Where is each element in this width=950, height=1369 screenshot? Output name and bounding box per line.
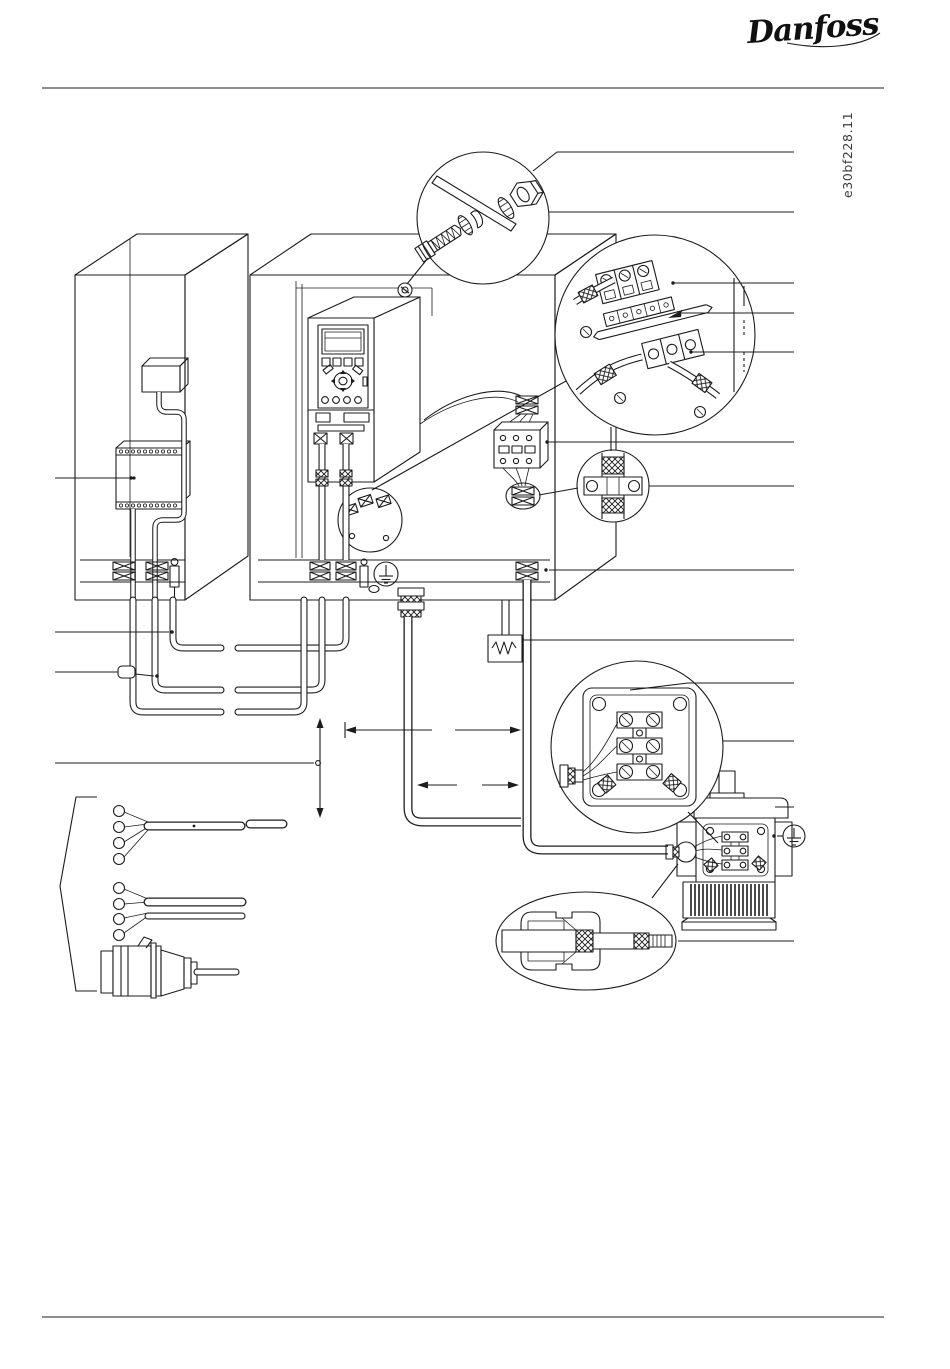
emc-gland-detail [496, 892, 676, 990]
horizontal-dimension-arrow-upper [345, 722, 521, 738]
gland-plate-items [310, 559, 424, 617]
motor-cable-gland [666, 842, 696, 862]
output-contactor [420, 391, 549, 509]
document-page: Danfoss e30bf228.11 [0, 0, 950, 1369]
plc-cabinet-side [185, 234, 248, 600]
ground-stud [170, 566, 179, 587]
page-header: Danfoss [42, 6, 884, 88]
option-two-cables [114, 883, 243, 941]
motor-top-cap [694, 798, 788, 818]
grounding-screw-detail [413, 152, 549, 284]
power-terminal-detail [555, 235, 755, 435]
emc-cable-gland [398, 588, 424, 617]
plc-cabinet-top [75, 234, 248, 275]
ground-stud [360, 566, 368, 587]
motor-fins [683, 882, 775, 918]
emc-installation-diagram [55, 152, 805, 998]
plc-cable-clamps [113, 559, 179, 600]
cable-marker [118, 666, 135, 678]
mains-plug [101, 937, 236, 998]
options-bracket [60, 797, 97, 991]
clamp-bar [584, 477, 642, 495]
option-four-wire-cable [114, 806, 284, 865]
mains-connection-options [60, 797, 283, 998]
page-canvas: Danfoss e30bf228.11 [0, 0, 950, 1369]
mounting-screw [398, 283, 412, 297]
screw-detail-pointer [407, 258, 428, 284]
shield-braid [576, 930, 593, 952]
gland-detail-pointer [652, 864, 678, 898]
motor-terminal-box-detail [551, 661, 723, 833]
clearance-dimension-arrows [317, 718, 522, 818]
motor-base [682, 918, 776, 930]
knockout-hole [369, 586, 379, 593]
cable-jacket [502, 930, 576, 952]
plc-leader-dot [132, 476, 135, 479]
horizontal-dimension-arrow-lower [417, 782, 519, 789]
control-cables-under-cabinets [118, 600, 346, 712]
shield-clamp-detail [577, 450, 649, 522]
plc-module [116, 441, 190, 509]
drive-side [374, 297, 420, 482]
danfoss-logo: Danfoss [745, 6, 880, 51]
vertical-dimension-arrow [317, 718, 324, 818]
contactor-input-cable [424, 391, 521, 420]
clamp-detail-pointer [539, 488, 578, 495]
motor-cable-plate-clamp [516, 562, 548, 580]
drawing-number: e30bf228.11 [840, 112, 855, 198]
cable-shield-braid [602, 457, 624, 474]
transformer-box [142, 358, 188, 392]
brake-resistor [488, 600, 522, 662]
plc-cabinet [75, 234, 248, 600]
drive-cabinet [250, 234, 616, 600]
